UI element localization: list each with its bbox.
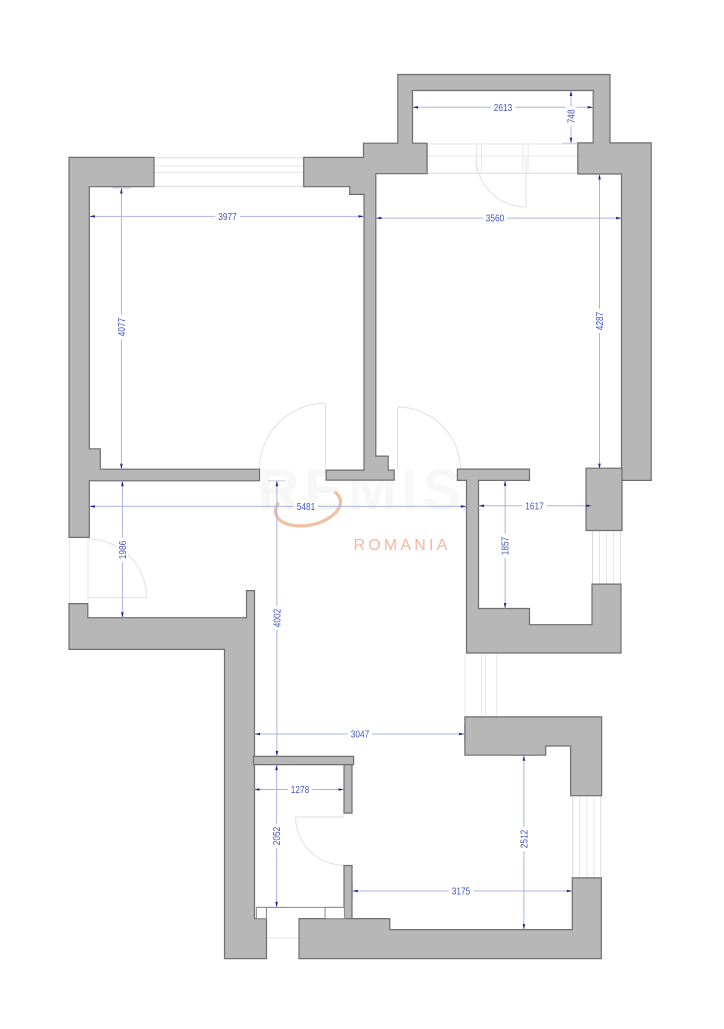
svg-text:2052: 2052 — [272, 826, 283, 845]
svg-text:4287: 4287 — [595, 311, 606, 330]
svg-text:2613: 2613 — [494, 103, 513, 114]
svg-text:REMIS: REMIS — [258, 458, 467, 523]
svg-text:1986: 1986 — [118, 540, 129, 559]
svg-text:4077: 4077 — [117, 317, 128, 336]
svg-text:1617: 1617 — [525, 501, 544, 512]
svg-text:1278: 1278 — [291, 785, 310, 796]
svg-text:1857: 1857 — [501, 536, 512, 555]
svg-text:748: 748 — [567, 109, 578, 123]
svg-text:3977: 3977 — [218, 212, 237, 223]
svg-text:ROMANIA: ROMANIA — [353, 537, 450, 554]
svg-text:3047: 3047 — [351, 730, 370, 741]
svg-text:3175: 3175 — [452, 887, 471, 898]
svg-text:2512: 2512 — [519, 829, 530, 848]
svg-text:4002: 4002 — [272, 608, 283, 627]
svg-text:3560: 3560 — [486, 214, 505, 225]
svg-text:5481: 5481 — [297, 502, 316, 513]
